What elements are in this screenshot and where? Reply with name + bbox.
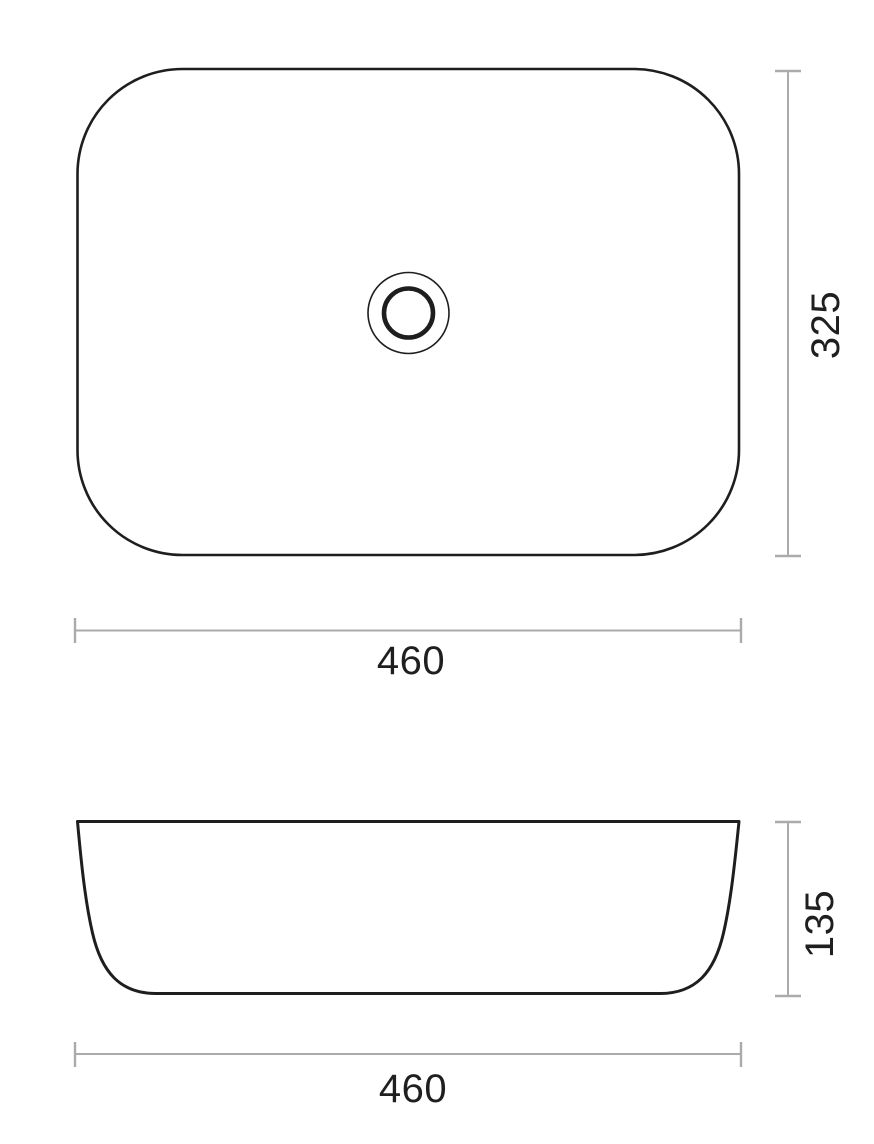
- dim-label-plan-width: 460: [377, 641, 445, 681]
- dim-line-plan-depth: [775, 71, 801, 556]
- drawing-svg: [0, 0, 874, 1144]
- dim-line-elevation-width: [75, 1042, 741, 1067]
- dim-label-elevation-height: 135: [800, 890, 840, 958]
- dim-label-elevation-width: 460: [379, 1069, 447, 1109]
- dim-label-plan-depth: 325: [806, 291, 846, 359]
- plan-view-outline: [78, 69, 740, 555]
- basin-dimension-drawing: 325 460 135 460: [0, 0, 874, 1144]
- elevation-view-outline: [78, 822, 740, 994]
